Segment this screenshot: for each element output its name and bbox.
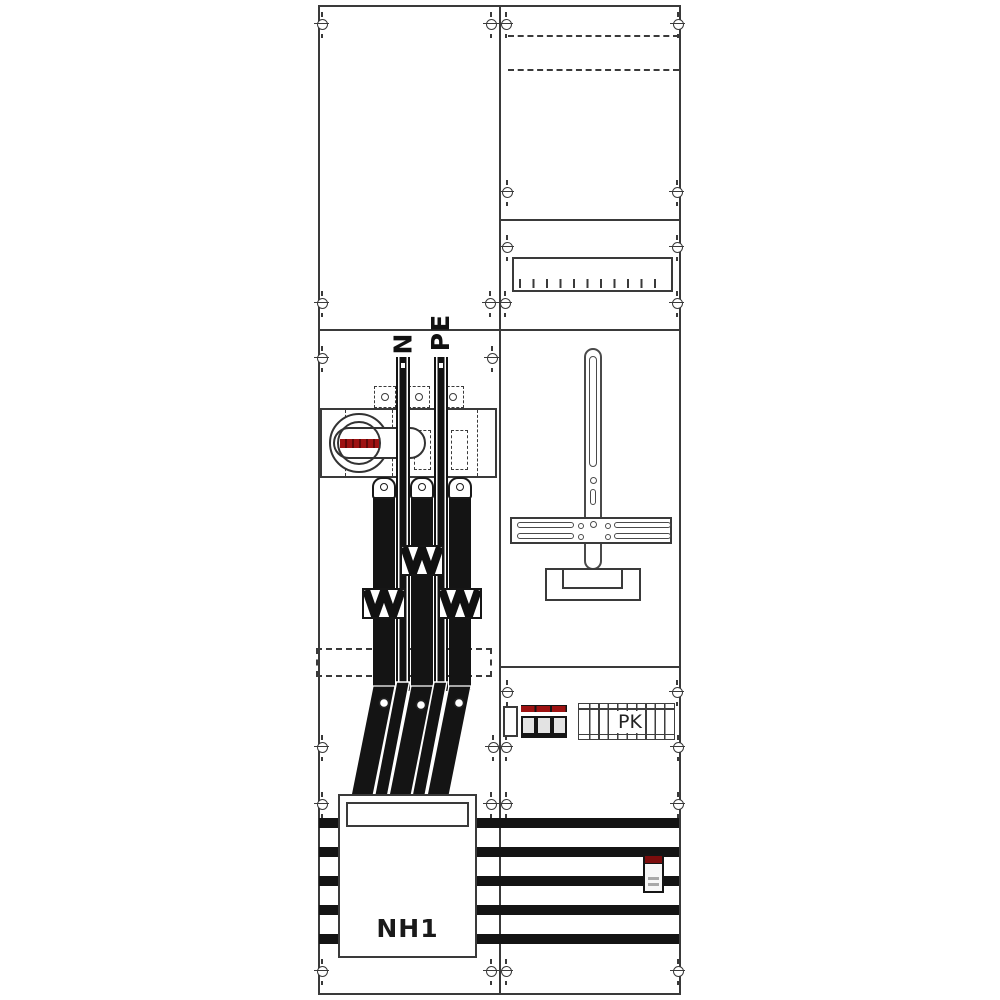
w-glyph: [402, 547, 442, 574]
switch-terminal-window: [451, 430, 468, 470]
screw-icon: [485, 12, 498, 38]
section-line-full: [320, 329, 680, 331]
screw-head: [501, 966, 512, 977]
din-rail-slot-lower: [590, 489, 596, 505]
screw-icon: [484, 291, 497, 317]
screw-head: [501, 799, 512, 810]
clamp-screw-hole: [418, 483, 426, 491]
pk-comb-topline: [579, 708, 674, 710]
terminal-strip: [512, 257, 673, 292]
din-rail-hole: [590, 477, 597, 484]
rotary-handle-red-stripe: [340, 439, 379, 448]
pk-comb-bottomline: [579, 734, 674, 736]
cross-rail-center-hole: [590, 521, 597, 528]
breaker-mark: [648, 883, 659, 886]
clamp-hole: [381, 393, 389, 401]
clamp-hole: [449, 393, 457, 401]
screw-icon: [672, 792, 685, 818]
clamp-window: [374, 386, 396, 408]
screw-head: [317, 966, 328, 977]
terminal-strip-ticks: [519, 279, 666, 288]
cover-dashed-line-1: [508, 35, 679, 37]
screw-icon: [316, 959, 329, 985]
expansion-joint-symbol: [362, 588, 406, 619]
busbar-hole: [401, 363, 405, 368]
screw-icon: [499, 291, 512, 317]
neutral-busbar: [396, 357, 410, 691]
screw-icon: [501, 680, 514, 706]
clamp-terminal: [448, 477, 472, 499]
screw-icon: [671, 180, 684, 206]
screw-icon: [672, 959, 685, 985]
screw-head: [673, 742, 684, 753]
screw-head: [672, 298, 683, 309]
clamp-screw-hole: [456, 483, 464, 491]
screw-head: [487, 353, 498, 364]
screw-head: [317, 799, 328, 810]
screw-head: [673, 966, 684, 977]
screw-icon: [500, 792, 513, 818]
screw-head: [502, 187, 513, 198]
busbar-tap-breaker: [643, 854, 664, 893]
screw-icon: [671, 235, 684, 261]
screw-icon: [316, 346, 329, 372]
terminal-module-base: [521, 735, 567, 738]
clamp-terminal: [372, 477, 396, 499]
pe-busbar: [434, 357, 448, 691]
clamp-window: [408, 386, 430, 408]
screw-head: [501, 19, 512, 30]
screw-head: [486, 799, 497, 810]
screw-icon: [316, 291, 329, 317]
nh1-label: NH1: [340, 914, 475, 943]
screw-head: [486, 966, 497, 977]
w-glyph: [364, 590, 404, 617]
pk-comb-busbar: PK: [578, 703, 675, 740]
cross-rail-slot: [614, 533, 671, 539]
screw-icon: [486, 346, 499, 372]
cabinet-diagram: NH1 PK N PE: [0, 0, 1000, 1000]
clamp-terminal: [410, 477, 434, 499]
cross-rail-hole: [605, 523, 611, 529]
screw-icon: [500, 12, 513, 38]
pe-label-text: PE: [427, 313, 456, 350]
cross-rail-hole: [605, 534, 611, 540]
pk-label: PK: [616, 711, 644, 733]
screw-icon: [501, 180, 514, 206]
screw-head: [673, 799, 684, 810]
mounting-bracket-inner: [562, 568, 623, 589]
din-bracket-left: [503, 706, 518, 737]
expansion-joint-symbol: [438, 588, 482, 619]
cross-rail-hole: [578, 534, 584, 540]
screw-head: [502, 687, 513, 698]
busbar-hole: [439, 363, 443, 368]
screw-head: [502, 242, 513, 253]
screw-head: [673, 19, 684, 30]
terminal-modules: [521, 716, 567, 735]
pe-label: PE: [426, 306, 456, 358]
expansion-joint-symbol: [400, 545, 444, 576]
w-glyph: [440, 590, 480, 617]
cross-rail-horizontal: [510, 517, 672, 544]
terminal-module-red-band: [521, 705, 567, 712]
clamp-hole: [415, 393, 423, 401]
nh1-fuse-box: NH1: [338, 794, 477, 958]
cross-rail-slot: [517, 533, 574, 539]
screw-head: [672, 242, 683, 253]
section-line-right-upper: [501, 219, 680, 221]
neutral-label-text: N: [389, 332, 418, 354]
section-line-right-lower: [501, 666, 680, 668]
din-rail-slot: [589, 356, 597, 467]
screw-icon: [500, 735, 513, 761]
breaker-mark: [648, 877, 659, 880]
clamp-screw-hole: [380, 483, 388, 491]
cross-rail-hole: [578, 523, 584, 529]
screw-head: [672, 187, 683, 198]
breaker-red-cap: [645, 856, 662, 864]
screw-head: [317, 298, 328, 309]
neutral-label: N: [388, 328, 418, 358]
cross-rail-slot: [614, 522, 671, 528]
screw-head: [501, 742, 512, 753]
screw-head: [500, 298, 511, 309]
cover-dashed-line-2: [508, 69, 679, 71]
switch-module-line: [477, 410, 478, 476]
screw-head: [485, 298, 496, 309]
screw-icon: [672, 12, 685, 38]
sloped-conductors: [300, 650, 500, 800]
screw-head: [672, 687, 683, 698]
screw-icon: [500, 959, 513, 985]
screw-head: [317, 19, 328, 30]
nh1-label-window: [346, 802, 469, 827]
screw-head: [317, 353, 328, 364]
screw-head: [486, 19, 497, 30]
terminal-module-block: [521, 704, 567, 738]
screw-icon: [501, 235, 514, 261]
screw-icon: [485, 959, 498, 985]
cross-rail-slot: [517, 522, 574, 528]
screw-icon: [316, 12, 329, 38]
screw-icon: [671, 291, 684, 317]
